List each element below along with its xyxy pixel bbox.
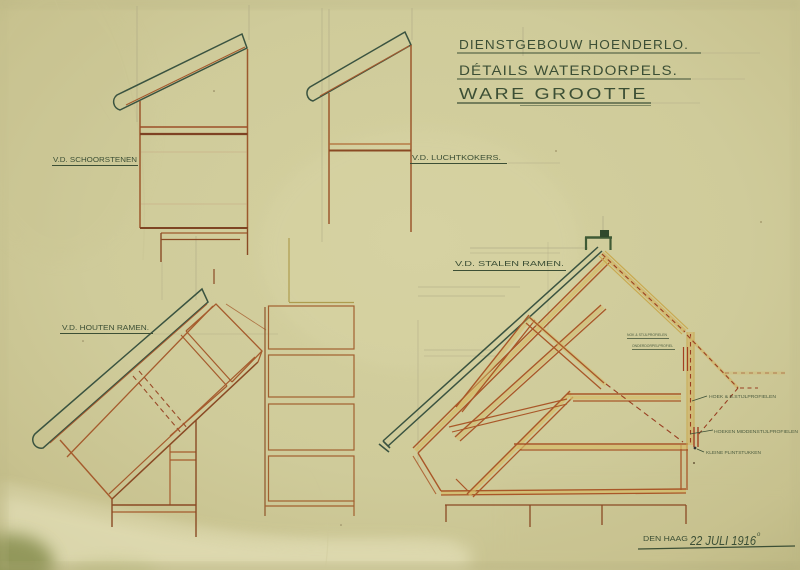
svg-text:DIENSTGEBOUW HOENDERLO.: DIENSTGEBOUW HOENDERLO. — [459, 38, 689, 52]
svg-text:V.D. SCHOORSTENEN: V.D. SCHOORSTENEN — [53, 157, 137, 164]
svg-text:NOK & STIJLPROFIELEN: NOK & STIJLPROFIELEN — [627, 332, 667, 337]
svg-text:V.D. LUCHTKOKERS.: V.D. LUCHTKOKERS. — [412, 155, 501, 162]
svg-text:V.D. STALEN RAMEN.: V.D. STALEN RAMEN. — [455, 259, 564, 268]
svg-text:ONDERDORPELPROFIEL: ONDERDORPELPROFIEL — [632, 343, 674, 348]
svg-text:HOEK & B.STIJLPROFIELEN: HOEK & B.STIJLPROFIELEN — [709, 394, 776, 399]
svg-text:WARE GROOTTE: WARE GROOTTE — [459, 86, 648, 103]
svg-text:22 JULI 1916: 22 JULI 1916 — [689, 533, 757, 548]
svg-text:DÉTAILS WATERDORPELS.: DÉTAILS WATERDORPELS. — [459, 63, 678, 78]
svg-text:V.D. HOUTEN RAMEN.: V.D. HOUTEN RAMEN. — [62, 325, 149, 332]
svg-text:KLEINE PLINTSTUKKEN: KLEINE PLINTSTUKKEN — [706, 450, 761, 455]
svg-text:HOEKEN MIDDENSTIJLPROFIELEN: HOEKEN MIDDENSTIJLPROFIELEN — [714, 429, 798, 434]
svg-text:DEN HAAG: DEN HAAG — [643, 534, 688, 543]
